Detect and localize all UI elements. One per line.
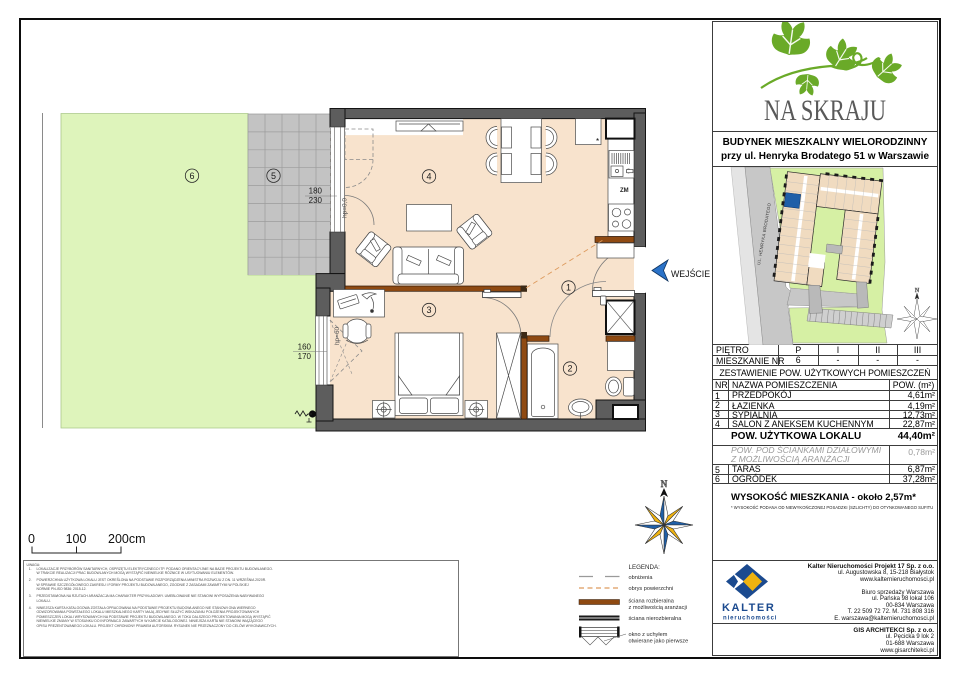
svg-text:170: 170 — [298, 352, 312, 361]
svg-text:5: 5 — [271, 171, 276, 181]
svg-text:*: * — [596, 137, 599, 146]
svg-text:hp=0,0: hp=0,0 — [342, 198, 349, 218]
svg-text:ZM: ZM — [620, 188, 629, 194]
svg-text:N: N — [661, 479, 668, 489]
svg-text:okno z uchyłem: okno z uchyłem — [629, 632, 668, 638]
svg-text:otwierane jako pierwsze: otwierane jako pierwsze — [629, 639, 689, 645]
svg-text:nieruchomości: nieruchomości — [723, 616, 777, 622]
svg-text:ściana rozbieralna: ściana rozbieralna — [629, 599, 675, 605]
svg-text:ściana nierozbieralna: ściana nierozbieralna — [629, 616, 683, 622]
svg-text:2: 2 — [567, 364, 572, 374]
svg-text:LEGENDA:: LEGENDA: — [629, 564, 661, 571]
svg-text:WEJŚCIE: WEJŚCIE — [671, 268, 710, 279]
svg-text:KALTER: KALTER — [722, 602, 775, 614]
svg-text:160: 160 — [298, 343, 312, 352]
svg-text:200cm: 200cm — [108, 532, 146, 546]
svg-text:6: 6 — [189, 171, 194, 181]
svg-text:4: 4 — [426, 172, 431, 182]
svg-text:100: 100 — [66, 532, 87, 546]
svg-text:1: 1 — [566, 283, 571, 293]
svg-text:0: 0 — [28, 532, 35, 546]
svg-text:obrys powierzchni: obrys powierzchni — [629, 586, 674, 592]
svg-text:3: 3 — [426, 305, 431, 315]
svg-text:hp=60: hp=60 — [334, 326, 341, 345]
svg-text:obniżenia: obniżenia — [629, 575, 654, 581]
svg-text:180: 180 — [309, 187, 323, 196]
svg-text:230: 230 — [309, 196, 323, 205]
svg-text:N: N — [915, 288, 920, 294]
svg-text:z możliwością aranżacji: z możliwością aranżacji — [629, 605, 687, 611]
